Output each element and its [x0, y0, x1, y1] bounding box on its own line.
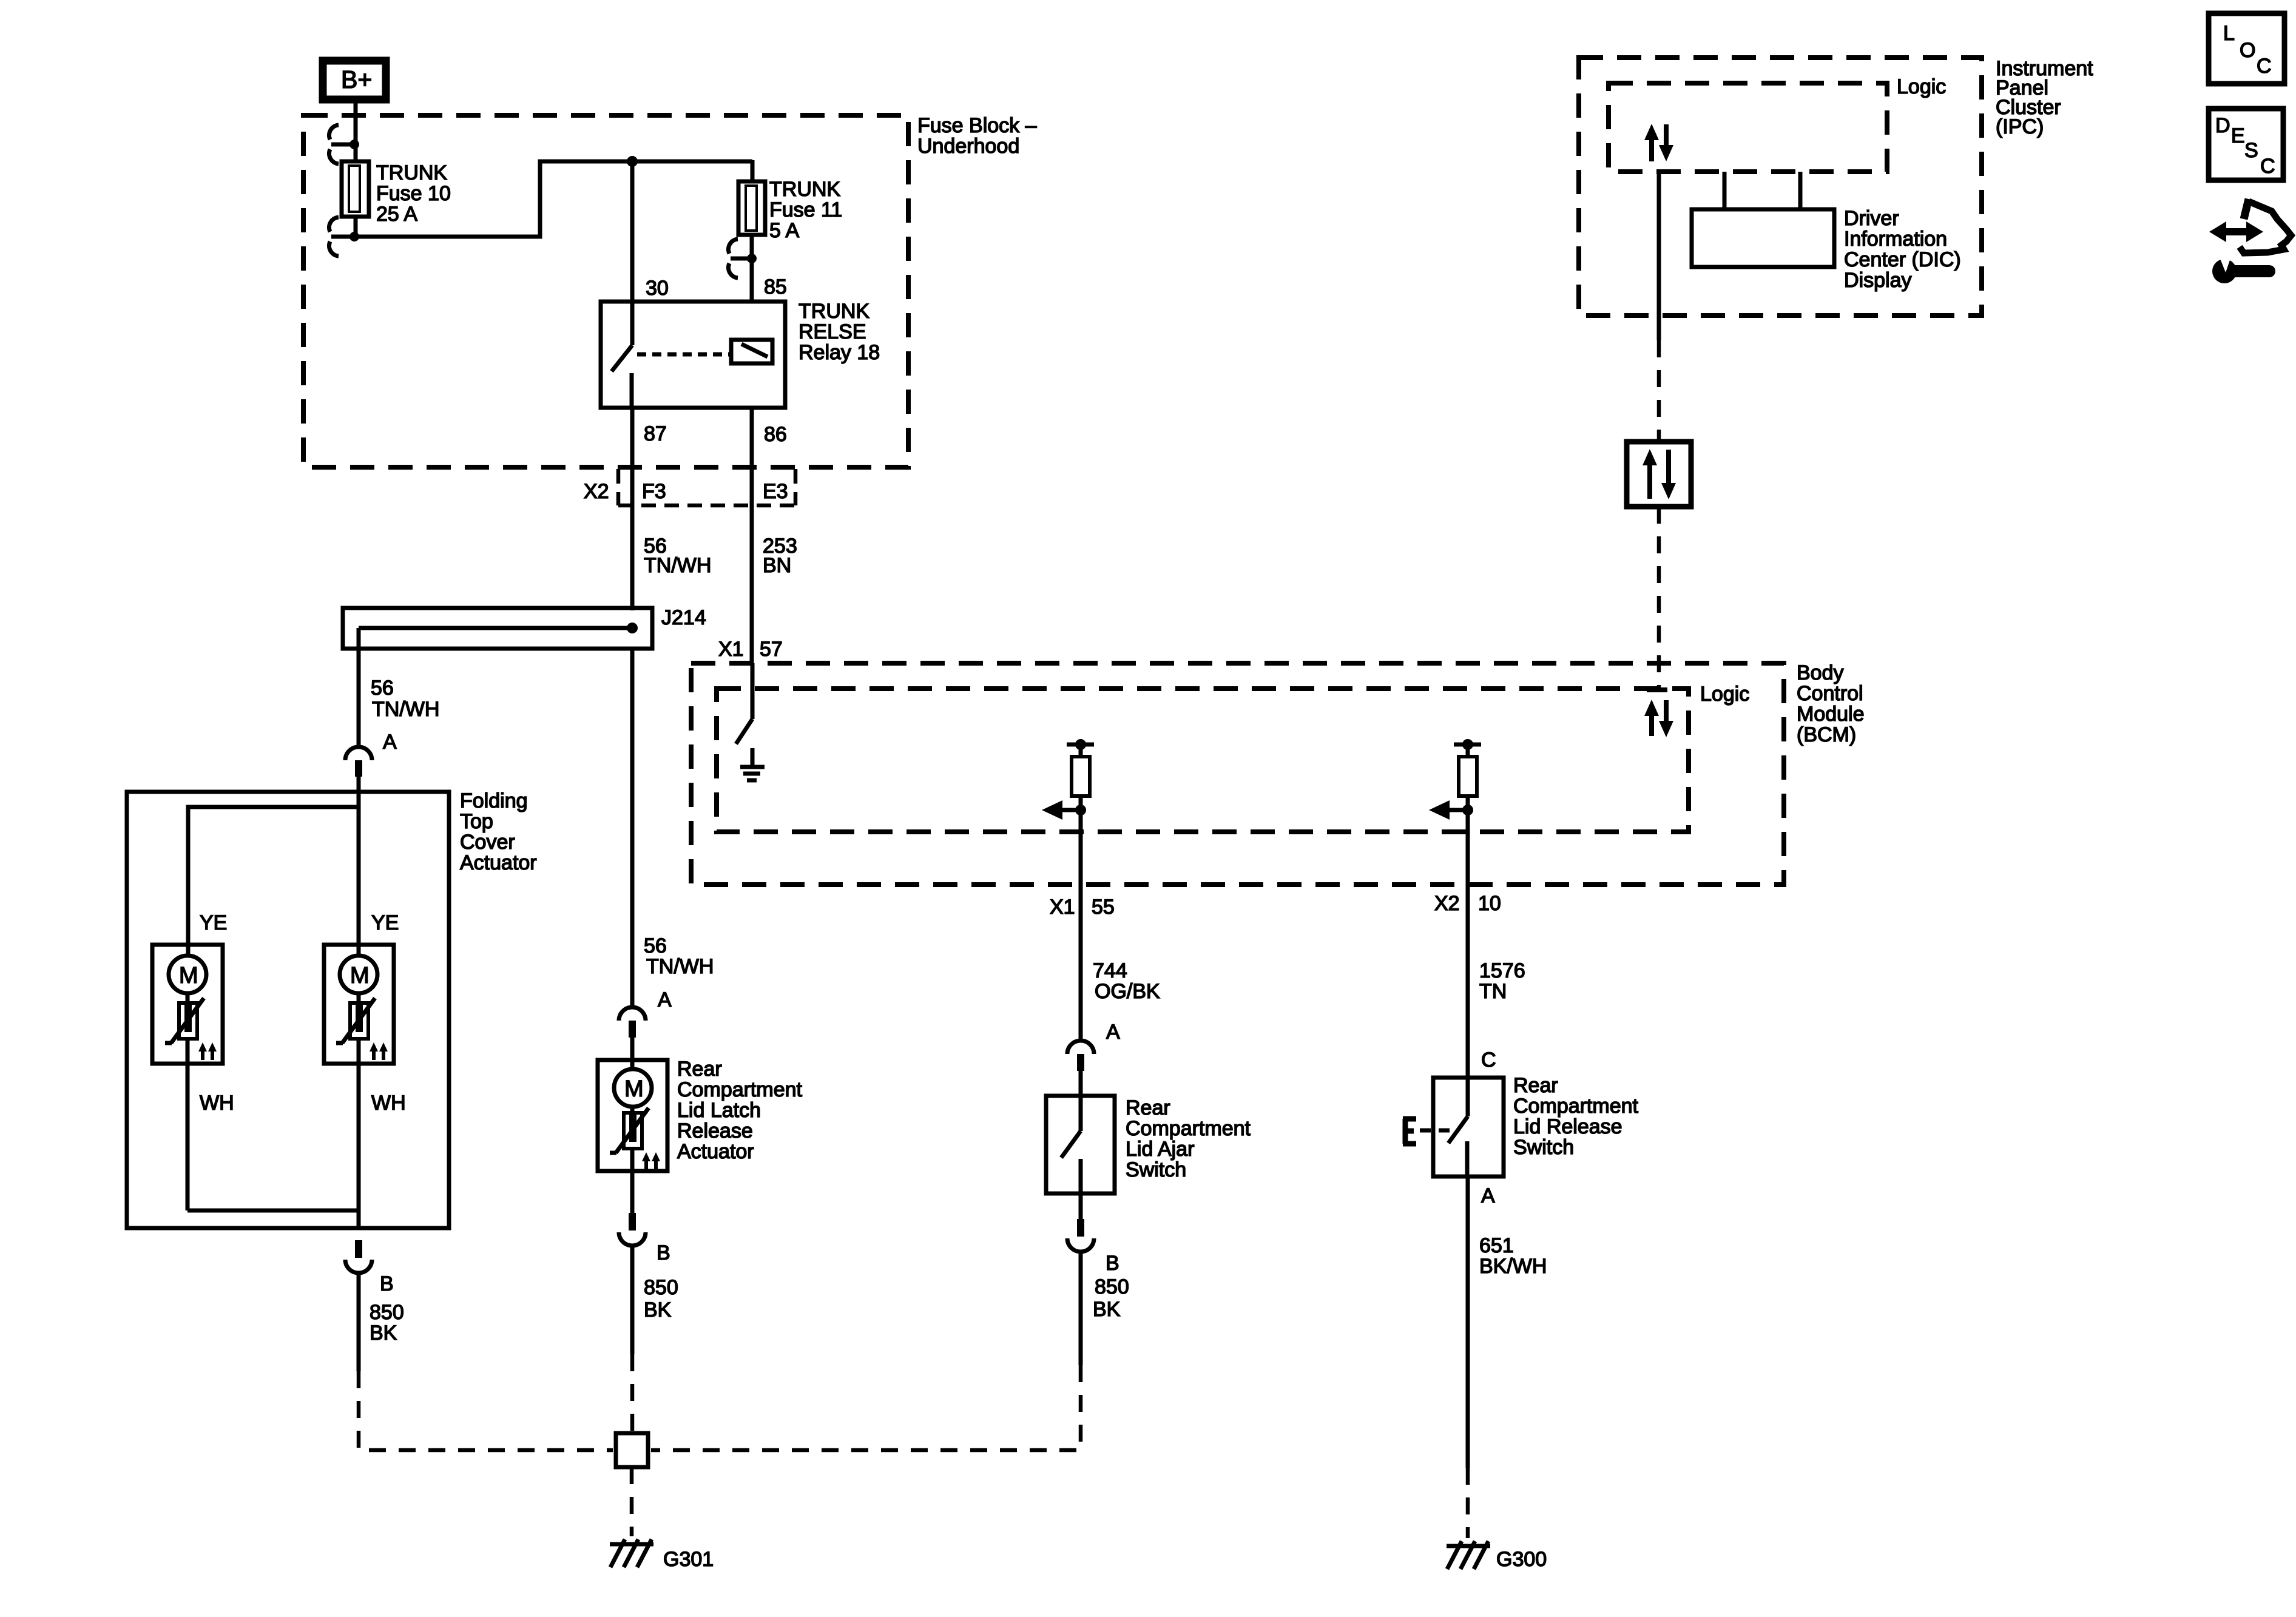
svg-text:J214: J214 [661, 606, 706, 629]
svg-text:Underhood: Underhood [917, 135, 1019, 158]
svg-text:OG/BK: OG/BK [1095, 980, 1160, 1003]
svg-text:744: 744 [1093, 959, 1127, 982]
svg-text:O: O [2240, 39, 2255, 62]
svg-text:Rear: Rear [677, 1058, 722, 1081]
svg-text:G300: G300 [1496, 1548, 1547, 1571]
svg-text:L: L [2223, 22, 2235, 45]
svg-text:Logic: Logic [1897, 75, 1946, 98]
svg-text:A: A [383, 731, 397, 754]
svg-text:5 A: 5 A [769, 219, 799, 242]
svg-text:Information: Information [1844, 228, 1947, 251]
svg-text:850: 850 [644, 1276, 678, 1299]
svg-text:BK: BK [644, 1298, 672, 1322]
svg-text:YE: YE [371, 911, 399, 934]
svg-text:Switch: Switch [1513, 1136, 1574, 1159]
svg-text:Compartment: Compartment [677, 1078, 803, 1101]
svg-text:Driver: Driver [1844, 207, 1899, 230]
svg-text:Switch: Switch [1126, 1158, 1186, 1181]
svg-text:850: 850 [370, 1301, 404, 1324]
svg-text:WH: WH [200, 1092, 234, 1115]
svg-text:Cover: Cover [460, 831, 515, 854]
svg-text:M: M [179, 963, 198, 988]
svg-text:Module: Module [1797, 703, 1865, 726]
svg-text:85: 85 [764, 275, 787, 299]
svg-text:C: C [2257, 55, 2272, 78]
svg-text:56: 56 [644, 934, 667, 957]
svg-text:(IPC): (IPC) [1996, 115, 2044, 138]
svg-text:RELSE: RELSE [799, 320, 866, 343]
svg-text:BN: BN [763, 554, 791, 577]
svg-text:F3: F3 [642, 480, 666, 503]
svg-text:M: M [624, 1076, 644, 1102]
svg-text:TN: TN [1479, 980, 1507, 1003]
svg-text:Rear: Rear [1126, 1096, 1170, 1119]
svg-text:B: B [380, 1272, 394, 1295]
svg-text:Top: Top [460, 810, 493, 833]
svg-text:A: A [1106, 1021, 1120, 1044]
svg-text:10: 10 [1478, 892, 1501, 915]
svg-text:X1: X1 [718, 638, 744, 661]
svg-text:Lid Release: Lid Release [1513, 1115, 1622, 1138]
svg-text:Lid Latch: Lid Latch [677, 1099, 761, 1122]
svg-text:Compartment: Compartment [1513, 1095, 1639, 1118]
svg-text:Fuse 11: Fuse 11 [769, 198, 842, 221]
svg-text:X2: X2 [584, 480, 609, 503]
svg-text:57: 57 [760, 638, 783, 661]
svg-text:Rear: Rear [1513, 1074, 1558, 1097]
svg-text:Display: Display [1844, 269, 1911, 292]
svg-text:G301: G301 [663, 1548, 714, 1571]
svg-text:Body: Body [1797, 661, 1844, 684]
svg-text:TRUNK: TRUNK [769, 178, 840, 201]
svg-text:Relay 18: Relay 18 [799, 341, 880, 364]
svg-text:25 A: 25 A [376, 203, 417, 226]
svg-text:D: D [2215, 114, 2230, 137]
svg-text:Fuse 10: Fuse 10 [376, 182, 451, 205]
svg-text:Logic: Logic [1700, 683, 1749, 706]
svg-text:TN/WH: TN/WH [372, 698, 439, 721]
svg-text:B: B [657, 1241, 670, 1264]
svg-text:E3: E3 [763, 480, 788, 503]
svg-text:86: 86 [764, 423, 787, 446]
svg-text:(BCM): (BCM) [1797, 723, 1856, 746]
svg-text:X1: X1 [1050, 896, 1075, 919]
svg-text:C: C [2260, 155, 2275, 178]
svg-text:Actuator: Actuator [460, 851, 537, 874]
svg-text:Lid Ajar: Lid Ajar [1126, 1138, 1194, 1161]
svg-text:B: B [1106, 1252, 1119, 1275]
svg-text:Folding: Folding [460, 789, 528, 812]
svg-text:TN/WH: TN/WH [644, 554, 711, 577]
svg-text:Center (DIC): Center (DIC) [1844, 248, 1961, 271]
svg-text:X2: X2 [1434, 892, 1460, 915]
svg-text:M: M [350, 963, 370, 988]
svg-text:BK/WH: BK/WH [1479, 1255, 1547, 1278]
svg-text:30: 30 [646, 277, 669, 300]
svg-text:C: C [1481, 1048, 1496, 1072]
svg-text:Fuse Block –: Fuse Block – [917, 114, 1037, 137]
svg-text:B+: B+ [341, 66, 372, 93]
svg-text:BK: BK [1093, 1298, 1121, 1321]
svg-text:TN/WH: TN/WH [646, 955, 714, 978]
svg-text:87: 87 [644, 422, 667, 445]
svg-text:TRUNK: TRUNK [376, 161, 447, 184]
svg-text:55: 55 [1092, 896, 1115, 919]
svg-text:850: 850 [1095, 1275, 1129, 1298]
svg-text:A: A [658, 988, 672, 1011]
svg-text:Compartment: Compartment [1126, 1117, 1251, 1140]
svg-text:TRUNK: TRUNK [799, 300, 869, 323]
svg-text:Control: Control [1797, 682, 1863, 705]
svg-text:S: S [2244, 139, 2258, 162]
svg-text:651: 651 [1479, 1234, 1514, 1257]
svg-text:A: A [1481, 1184, 1495, 1207]
svg-text:Actuator: Actuator [677, 1140, 754, 1163]
svg-text:BK: BK [370, 1322, 397, 1345]
svg-text:56: 56 [371, 677, 394, 700]
svg-text:1576: 1576 [1479, 959, 1525, 982]
svg-text:Release: Release [677, 1119, 753, 1143]
svg-text:YE: YE [200, 911, 227, 934]
svg-text:WH: WH [371, 1092, 406, 1115]
svg-text:E: E [2231, 124, 2245, 147]
